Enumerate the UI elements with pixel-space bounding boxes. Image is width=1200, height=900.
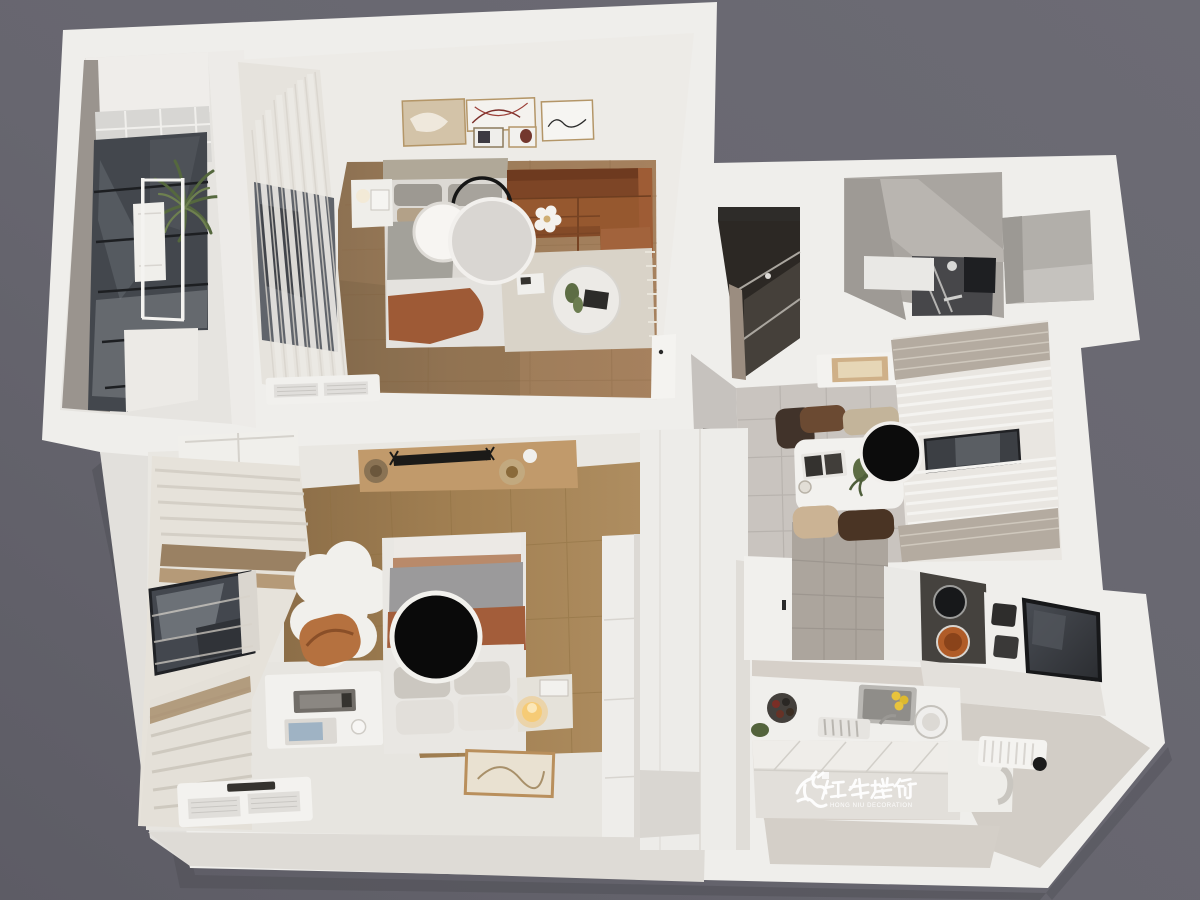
svg-text:HONG NIU DECORATION: HONG NIU DECORATION [830,803,913,809]
